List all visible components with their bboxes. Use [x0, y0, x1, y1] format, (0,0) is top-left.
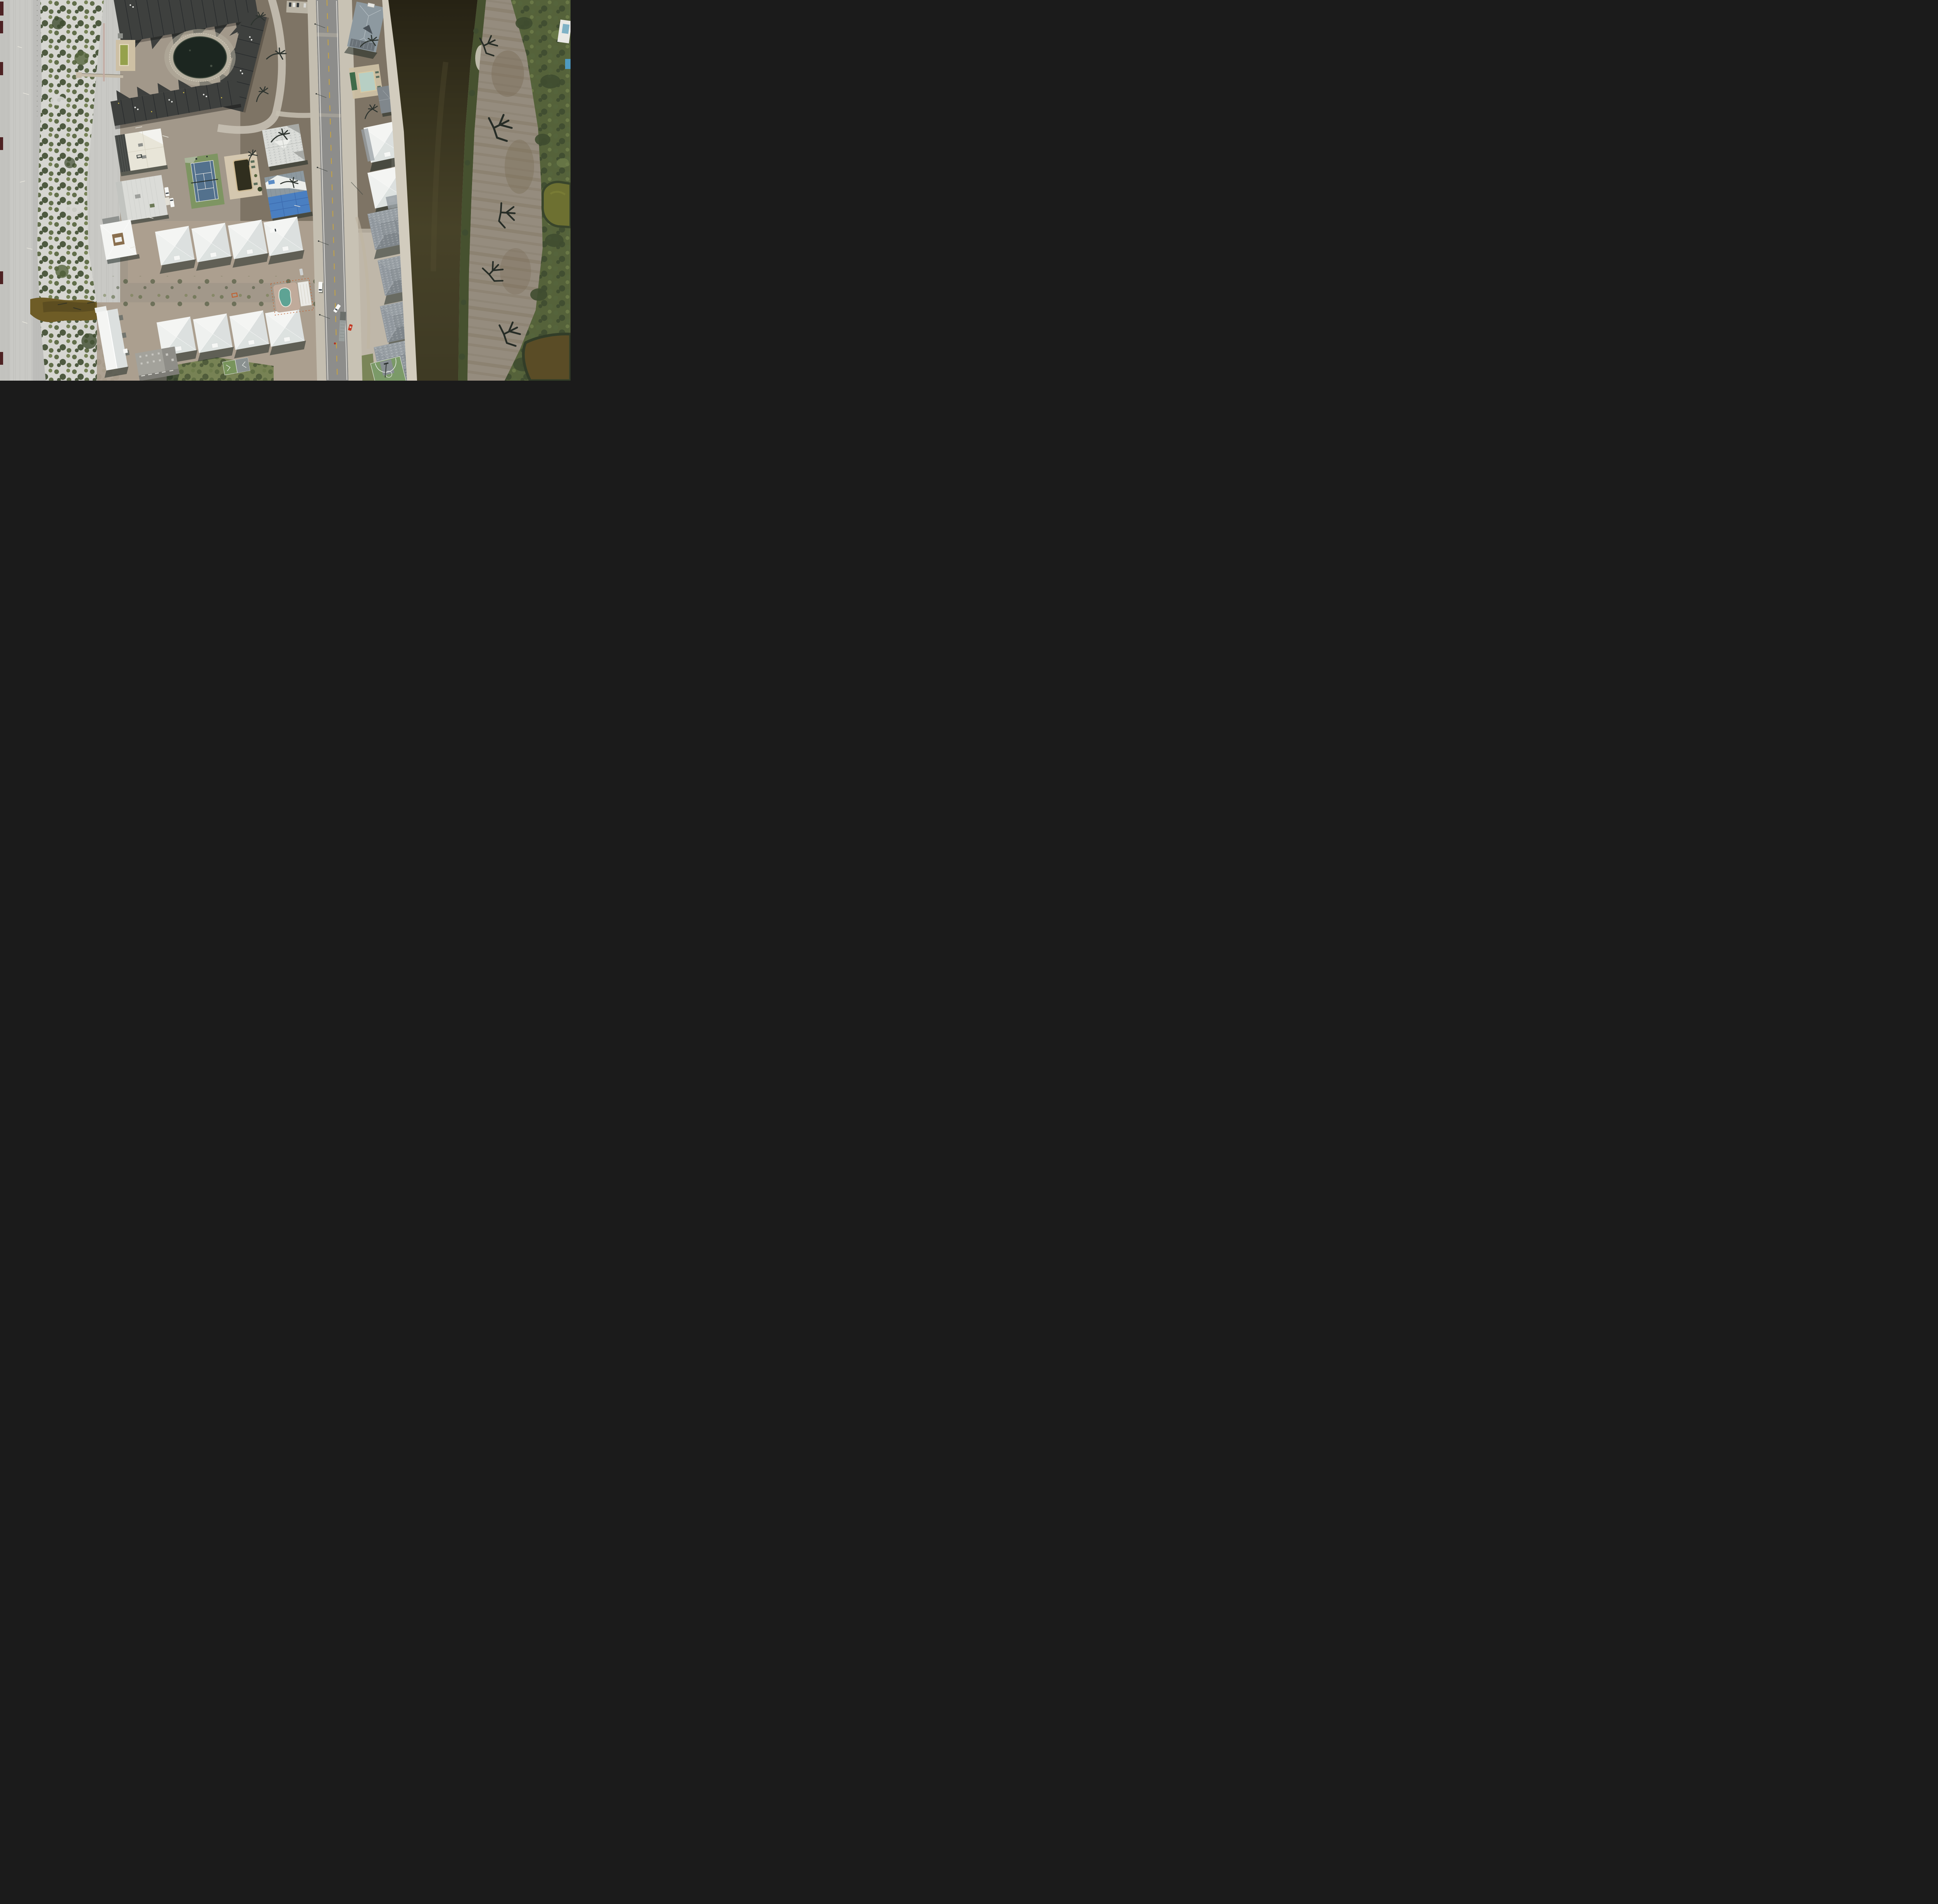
right-edge-pool-south [565, 59, 571, 69]
west-building-south [116, 175, 169, 226]
golf-pond [543, 182, 571, 227]
aerial-photo: Nadir aerial photograph of a hurricane-d… [0, 0, 571, 381]
tennis-court [184, 153, 225, 209]
condo-pond [164, 29, 236, 86]
white-van [318, 282, 323, 293]
marsh-pond [523, 334, 571, 381]
community-pool [224, 152, 263, 200]
white-shed [123, 348, 128, 354]
pool-pump-house [118, 33, 123, 38]
hydrant [334, 342, 336, 344]
west-building-north [115, 128, 168, 176]
